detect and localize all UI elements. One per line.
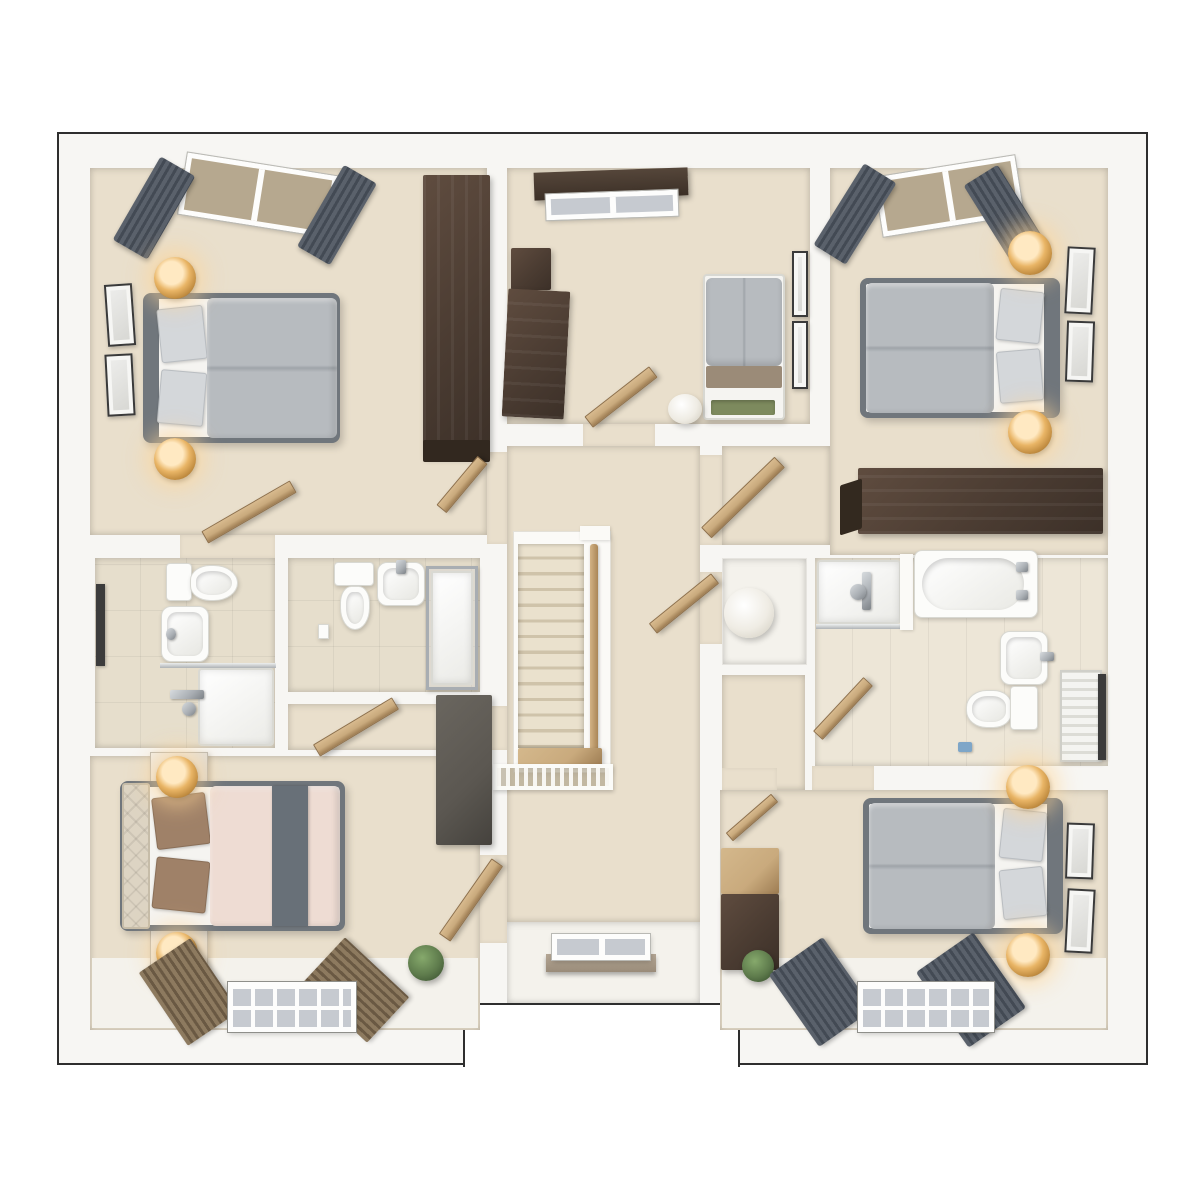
- bedroom-bl-lamp-top: [156, 756, 198, 798]
- ensuite-l-shower-tray: [198, 668, 274, 746]
- bed-headboard: [1047, 802, 1059, 930]
- bedroom-tr-art-1: [1064, 246, 1095, 314]
- bed-headboard: [1044, 282, 1056, 414]
- bed-runner: [272, 786, 308, 926]
- toilet-bowl-inner: [346, 592, 364, 624]
- bed-pillow: [995, 288, 1044, 344]
- bed-pillow-brown: [151, 792, 211, 850]
- bed-pillow: [996, 348, 1044, 404]
- bedroom-br-lamp-top: [1006, 765, 1050, 809]
- doorway-bedroom-top-middle: [583, 424, 655, 446]
- bedroom-tm-desk: [502, 288, 571, 419]
- stair-handrail: [590, 544, 598, 752]
- ensuite-m-toilet-bowl: [340, 586, 370, 630]
- doorway-bedroom-bottom-right: [722, 768, 777, 790]
- bed-pillow: [999, 866, 1048, 920]
- shower-tray: [431, 571, 473, 685]
- bedroom-tm-art-1: [792, 251, 808, 317]
- stairwell: [514, 532, 610, 772]
- bed-pillow-brown: [151, 856, 210, 913]
- bedroom-tr-lamp-top: [1008, 231, 1052, 275]
- basin-inner: [1006, 637, 1042, 679]
- bedroom-tm-cabinet: [511, 248, 551, 290]
- bedroom-tr-wardrobe: [858, 468, 1103, 534]
- bedroom-tl-lamp-top: [154, 257, 196, 299]
- fambath-shower-screen: [816, 624, 902, 629]
- bedroom-tl-art-1: [104, 283, 136, 347]
- bed-headboard-cream: [122, 783, 150, 929]
- plan-bottom-notch: [463, 1003, 740, 1067]
- window-mullion: [942, 171, 956, 221]
- stair-treads: [518, 544, 584, 748]
- bedroom-br-art-1: [1065, 823, 1095, 880]
- bed-duvet: [866, 283, 994, 413]
- bedroom-br-window: [858, 982, 994, 1032]
- bed-pillow: [999, 808, 1048, 862]
- fambath-shower-head: [850, 584, 866, 600]
- bedroom-br-art-2: [1064, 888, 1095, 953]
- ensuite-m-toilet-cistern: [334, 562, 374, 586]
- bedroom-bl-wardrobe: [436, 695, 492, 845]
- bedroom-bl-bed: [120, 781, 345, 931]
- bed-duvet: [869, 803, 995, 929]
- window-mullion: [251, 169, 265, 221]
- bedroom-tr-lamp-bottom: [1008, 410, 1052, 454]
- bed-pillow: [157, 369, 208, 427]
- window-mullion: [599, 939, 605, 955]
- fambath-shower-wall-stub: [900, 554, 913, 630]
- toilet-bowl-inner: [196, 571, 232, 595]
- fambath-bathtub: [914, 550, 1038, 618]
- alcove-laundry-sphere: [724, 588, 774, 638]
- toilet-bowl-inner: [972, 696, 1006, 722]
- bedroom-tl-bed: [143, 293, 340, 443]
- bedroom-br-bed: [863, 798, 1063, 934]
- stair-newel-top: [580, 526, 610, 540]
- bedroom-tr-art-2: [1065, 321, 1095, 383]
- stair-balustrade: [493, 764, 613, 790]
- doorway-family-bathroom: [812, 766, 874, 790]
- bedroom-tm-art-2: [792, 321, 808, 389]
- ensuite-m-basin-tap: [396, 560, 406, 574]
- ensuite-m-shower-enclosure: [426, 566, 478, 690]
- ensuite-l-shower-screen: [160, 663, 276, 668]
- bedroom-bl-window: [228, 982, 356, 1032]
- floor-plan-canvas: [0, 0, 1200, 1200]
- bedroom-tm-window: [546, 190, 679, 221]
- bathtub-tap-1: [1016, 562, 1028, 572]
- bathtub-inner: [922, 558, 1024, 610]
- ensuite-l-basin-tap: [166, 628, 176, 640]
- ensuite-l-toilet-bowl: [190, 565, 238, 601]
- bedroom-tl-art-2: [104, 353, 135, 416]
- bed-duvet: [207, 298, 337, 438]
- ensuite-l-toilet-cistern: [166, 563, 192, 601]
- bedroom-tm-laundry-basket: [668, 394, 702, 424]
- ensuite-m-light-switch: [318, 624, 329, 639]
- doorway-bedroom-top-left: [487, 452, 507, 544]
- dresser-top-oak: [721, 848, 779, 894]
- window-mullion: [609, 197, 616, 213]
- bedroom-tm-single-bed: [703, 274, 785, 420]
- landing-window: [552, 934, 650, 960]
- bathtub-tap-2: [1016, 590, 1028, 600]
- ensuite-l-shower-head: [182, 702, 196, 716]
- bed-pillow: [156, 305, 207, 364]
- ensuite-l-mirror: [96, 584, 105, 666]
- bedroom-tr-bed: [860, 278, 1060, 418]
- single-bed-blanket: [706, 366, 782, 388]
- bedroom-tl-wardrobe: [423, 175, 490, 457]
- ensuite-l-shower-mixer: [170, 690, 204, 699]
- bedroom-br-lamp-bottom: [1006, 933, 1050, 977]
- fambath-toilet-bowl: [966, 690, 1012, 728]
- single-bed-throw-green: [711, 400, 775, 415]
- fambath-toiletries: [958, 742, 972, 752]
- doorway-ensuite-left: [180, 535, 275, 558]
- fambath-radiator: [1060, 670, 1102, 762]
- bedroom-tl-lamp-bottom: [154, 438, 196, 480]
- bedroom-tr-wardrobe-end: [840, 478, 862, 535]
- single-bed-duvet: [706, 278, 782, 366]
- bedroom-bl-plant: [408, 945, 444, 981]
- fambath-basin-tap: [1040, 652, 1054, 661]
- bedroom-br-plant: [742, 950, 774, 982]
- fambath-toilet-cistern: [1010, 686, 1038, 730]
- fambath-towel-rail: [1098, 674, 1106, 760]
